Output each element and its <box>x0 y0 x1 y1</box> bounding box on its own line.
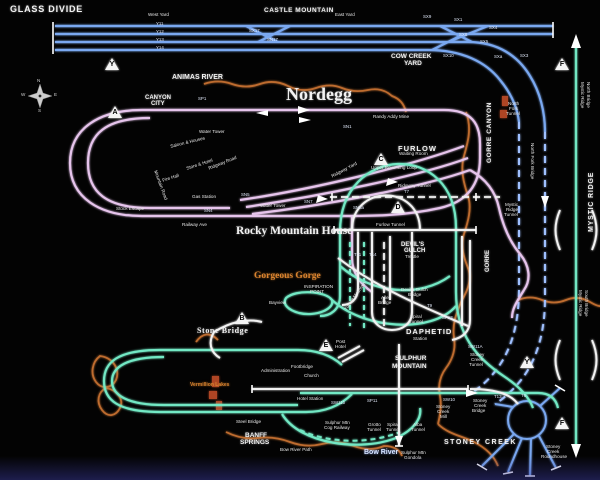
compass-north: N <box>37 79 40 84</box>
label-castle-mountain: CASTLE MOUNTAIN <box>264 8 334 15</box>
switch-label-sx5: SX5 <box>480 40 488 44</box>
label-randy-addy-mine: Randy Addy Mine <box>373 115 409 120</box>
label-sulphur: SULPHUR <box>395 356 426 363</box>
photo-bottom-glow <box>0 456 600 480</box>
switch-label-sn17: SN17 <box>267 38 278 42</box>
label-administration: Administration <box>261 369 290 374</box>
switch-label-t14: T14 <box>369 253 377 257</box>
switch-label-sp1: SP1 <box>198 97 206 101</box>
label-glass-divide: GLASS DIVIDE <box>10 5 83 14</box>
label-north-fork-tunnel-3: Tunnel <box>506 112 520 117</box>
label-mystic-south-bridge-2: South Bridge <box>583 290 588 317</box>
switch-label-y14: Y14 <box>156 46 164 50</box>
switch-label-t6: T6 <box>521 394 526 398</box>
label-gorgeous-gorge: Gorgeous Gorge <box>254 272 321 282</box>
marker-letter: A <box>111 109 119 116</box>
label-bayview: Bayview <box>269 301 286 306</box>
marker-triangle-d: D <box>391 201 405 213</box>
marker-letter: F <box>558 420 566 427</box>
compass-east: E <box>54 93 57 98</box>
label-mystic-north-bridge-2: North Bridge <box>585 82 590 108</box>
marker-triangle-b: B <box>235 312 249 324</box>
switch-label-sn7: SN7 <box>304 200 313 204</box>
label-footbridge: Footbridge <box>291 365 313 370</box>
switch-label-sn1: SN1 <box>343 125 352 129</box>
label-west-yard: West Yard <box>148 13 169 18</box>
marker-triangle-f-north: F <box>555 58 569 70</box>
switch-label-sx1: SX1 <box>454 18 462 22</box>
switch-label-sxa: SXa <box>494 55 502 59</box>
switch-label-sn5: SN5 <box>241 193 250 197</box>
label-mystic-ridge-tunnel-3: Tunnel <box>504 213 518 218</box>
marker-letter: Y <box>523 359 531 366</box>
marker-letter: E <box>322 342 330 349</box>
label-east-yard: East Yard <box>335 13 355 18</box>
label-daphetid: DAPHETID <box>406 328 452 336</box>
label-stoney-creek-tunnel-3: Tunnel <box>469 363 483 368</box>
switch-label-sp13: SP13 <box>442 316 453 320</box>
label-animas-river: ANIMAS RIVER <box>172 74 223 81</box>
label-upper-reversing-loop: Upper Reversing Loop <box>371 166 417 171</box>
switch-label-t9: T9 <box>427 304 432 308</box>
switch-label-t7: T7 <box>404 190 409 194</box>
switch-label-sx9: SX9 <box>423 15 431 19</box>
label-mystic-south-bridge-1: Mystic Ridge <box>577 290 582 316</box>
marker-triangle-c: C <box>374 153 388 165</box>
switch-label-t11: T11 <box>354 253 361 257</box>
switch-label-y12: Y12 <box>156 30 164 34</box>
switch-label-sw11b: SW11b <box>331 401 345 405</box>
marker-letter: D <box>394 204 402 211</box>
label-devils-gulch-bridge-2: Bridge <box>408 293 421 298</box>
label-stock-escape: Stock Escape <box>116 207 144 212</box>
label-ridgway-tunnel: Ridgway Tunnel <box>398 184 431 189</box>
staging-yard-tracks <box>55 26 553 132</box>
marker-letter: F <box>558 61 566 68</box>
switch-label-y11: Y11 <box>156 22 164 26</box>
marker-triangle-y-yard: Y <box>105 58 119 70</box>
marker-triangle-y-roundhouse: Y <box>520 356 534 368</box>
vermillion-lake-2 <box>99 388 122 415</box>
marker-triangle-a: A <box>108 106 122 118</box>
label-sulphur-mountain: MOUNTAIN <box>392 364 427 371</box>
label-inspiration-point: POINT <box>310 290 324 295</box>
compass-south: S <box>38 109 41 114</box>
switch-label-sx17: SX17 <box>249 29 260 33</box>
compass-west: W <box>21 93 25 98</box>
label-steel-bridge: Steel Bridge <box>236 420 261 425</box>
label-water-tower-1: Water Tower <box>199 130 225 135</box>
label-hotel-station: Hotel Station <box>297 397 323 402</box>
rivers-group <box>93 82 600 467</box>
label-cow-creek-yard: YARD <box>404 61 422 68</box>
marker-letter: B <box>238 315 246 322</box>
label-grotto-tunnel-2: Tunnel <box>367 428 381 433</box>
label-stone-bridge: Stone Bridge <box>197 327 248 335</box>
label-canyon-city: CITY <box>151 101 165 107</box>
label-spiral-tunnel-2b: Tunnel <box>386 428 400 433</box>
label-waiting-room: Waiting Room <box>399 152 428 157</box>
label-stoney-creek: STONEY CREEK <box>444 439 517 446</box>
label-mystic-north-bridge-1: Mystic Ridge <box>579 82 584 108</box>
gorre-canyon-river <box>462 112 470 300</box>
switch-label-sp11: SP11 <box>367 399 377 403</box>
nordegg-loop-tracks <box>70 110 529 318</box>
label-nordegg: Nordegg <box>286 85 352 103</box>
track-plan-map: GLASS DIVIDE CASTLE MOUNTAIN West Yard E… <box>0 0 600 480</box>
label-mystic-ridge: MYSTIC RIDGE <box>588 172 595 232</box>
switch-label-sx8: SX8 <box>459 33 467 37</box>
switch-label-sx4: SX4 <box>489 26 497 30</box>
compass-rose <box>28 84 52 108</box>
label-alba-tunnel-2: Tunnel <box>411 428 425 433</box>
marker-triangle-e: E <box>319 339 333 351</box>
switch-label-sx10: SX10 <box>443 54 454 58</box>
label-furlow-tunnel: Furlow Tunnel <box>376 223 405 228</box>
label-water-tower-2: Water Tower <box>260 204 286 209</box>
label-trestle: Trestle <box>405 255 419 260</box>
switch-label-sn4: SN4 <box>204 209 213 213</box>
track-lines-canvas <box>0 0 600 480</box>
label-gorre: GORRE <box>485 250 491 272</box>
label-gorre-canyon: GORRE CANYON <box>487 102 494 163</box>
label-rocky-mountain-house: Rocky Mountain House <box>236 226 352 238</box>
switch-label-sx3: SX3 <box>520 54 528 58</box>
stone-bridge-arch <box>196 334 218 342</box>
marker-triangle-f-south: F <box>555 417 569 429</box>
label-vermillion-lakes: Vermillion Lakes <box>190 383 229 388</box>
label-bow-river-path: Bow River Path <box>280 448 312 453</box>
label-spiral-tunnel-1b: Tunnel <box>409 320 423 325</box>
switch-label-sw11a: SW11A <box>468 345 483 349</box>
label-gas-station: Gas Station <box>192 195 216 200</box>
label-daphetid-station: Station <box>413 337 427 342</box>
label-post-hotel-2: Hotel <box>335 345 346 350</box>
label-north-fork-bridge: North Fork Bridge <box>529 143 534 179</box>
label-railway-ave: Railway Ave <box>182 223 207 228</box>
label-stoney-creek-bridge-3: Bridge <box>472 409 485 414</box>
marker-letter: Y <box>108 61 116 68</box>
switch-label-sn6a: SN6a <box>353 206 364 210</box>
label-church: Church <box>304 374 319 379</box>
label-stoney-creek-mill-3: Mill <box>440 415 447 420</box>
label-allen-bridge-2: Bridge <box>378 301 391 306</box>
switch-label-sw10: SW10 <box>443 398 455 402</box>
switch-label-t13: T13 <box>494 395 502 399</box>
label-bow-river: Bow River <box>364 449 398 456</box>
switch-label-y13: Y13 <box>156 38 164 42</box>
label-banff-springs: SPRINGS <box>240 440 269 447</box>
marker-letter: C <box>377 156 385 163</box>
label-cog-railway-2: Cog Railway <box>324 426 350 431</box>
